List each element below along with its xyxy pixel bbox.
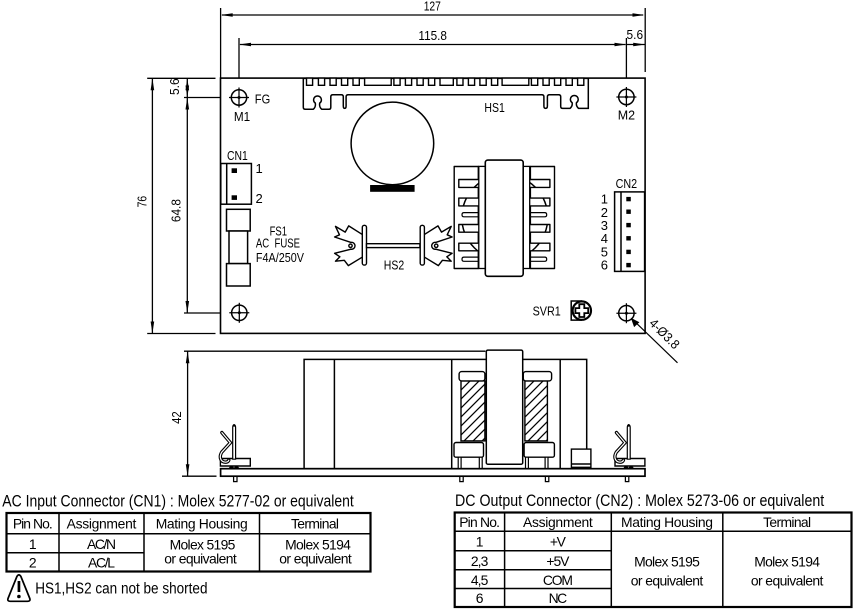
svg-text:64.8: 64.8 [170, 199, 184, 222]
svg-text:4,5: 4,5 [471, 572, 489, 588]
svg-text:76: 76 [136, 196, 150, 208]
svg-text:F4A/250V: F4A/250V [256, 250, 304, 265]
svg-text:or equivalent: or equivalent [751, 573, 824, 589]
svg-text:SVR1: SVR1 [533, 304, 561, 319]
svg-text:Assignment: Assignment [67, 516, 137, 532]
svg-text:2: 2 [256, 191, 263, 206]
svg-text:1: 1 [256, 161, 263, 176]
svg-text:Assignment: Assignment [523, 514, 593, 530]
svg-text:Pin No.: Pin No. [459, 514, 500, 530]
svg-text:M1: M1 [234, 109, 250, 124]
svg-text:6: 6 [476, 590, 484, 606]
svg-text:1: 1 [29, 536, 37, 552]
svg-text:127: 127 [424, 0, 441, 14]
svg-text:Terminal: Terminal [763, 514, 811, 530]
svg-text:HS1: HS1 [484, 100, 504, 115]
svg-text:AC/L: AC/L [88, 555, 115, 571]
svg-text:or equivalent: or equivalent [631, 573, 704, 589]
svg-text:AC FUSE: AC FUSE [256, 235, 300, 250]
svg-text:+V: +V [550, 534, 567, 550]
svg-text:DC Output Connector (CN2) : Mo: DC Output Connector (CN2) : Molex 5273-0… [455, 491, 825, 510]
svg-text:Pin No.: Pin No. [13, 516, 53, 532]
svg-text:6: 6 [601, 258, 608, 273]
svg-text:HS1,HS2 can not be shorted: HS1,HS2 can not be shorted [35, 580, 207, 597]
svg-text:CN2: CN2 [616, 176, 638, 191]
svg-text:FG: FG [255, 92, 270, 107]
svg-text:115.8: 115.8 [418, 29, 447, 43]
svg-text:HS2: HS2 [384, 257, 404, 272]
svg-text:CN1: CN1 [227, 148, 248, 163]
svg-text:or equivalent: or equivalent [279, 551, 352, 567]
svg-text:2: 2 [29, 555, 37, 571]
svg-text:AC Input Connector (CN1) : Mol: AC Input Connector (CN1) : Molex 5277-02… [2, 492, 354, 511]
svg-text:5.6: 5.6 [627, 28, 644, 42]
svg-text:Terminal: Terminal [291, 516, 339, 532]
svg-text:or equivalent: or equivalent [164, 551, 237, 567]
svg-text:AC/N: AC/N [87, 536, 116, 552]
svg-text:2,3: 2,3 [471, 553, 489, 569]
svg-text:42: 42 [170, 411, 184, 424]
svg-text:NC: NC [549, 590, 568, 606]
svg-text:Molex 5195: Molex 5195 [634, 554, 700, 570]
svg-text:+5V: +5V [546, 553, 570, 569]
svg-text:M2: M2 [618, 108, 635, 123]
svg-text:Molex 5194: Molex 5194 [754, 554, 820, 570]
svg-text:Mating Housing: Mating Housing [156, 516, 248, 532]
svg-text:Mating Housing: Mating Housing [621, 514, 713, 530]
svg-text:COM: COM [543, 572, 573, 588]
svg-text:5.6: 5.6 [168, 78, 182, 95]
svg-text:1: 1 [476, 534, 484, 550]
